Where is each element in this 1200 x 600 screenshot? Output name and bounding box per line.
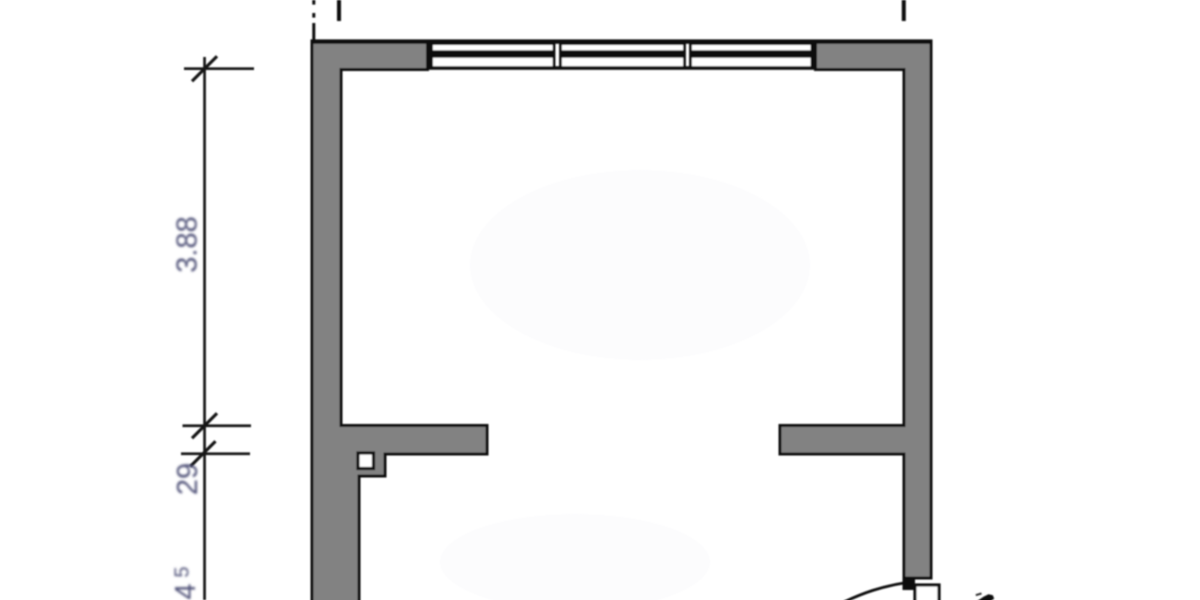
svg-text:4: 4 — [170, 583, 202, 599]
svg-text:3.88: 3.88 — [172, 216, 204, 272]
svg-text:5: 5 — [172, 566, 194, 577]
svg-text:29: 29 — [172, 463, 204, 495]
